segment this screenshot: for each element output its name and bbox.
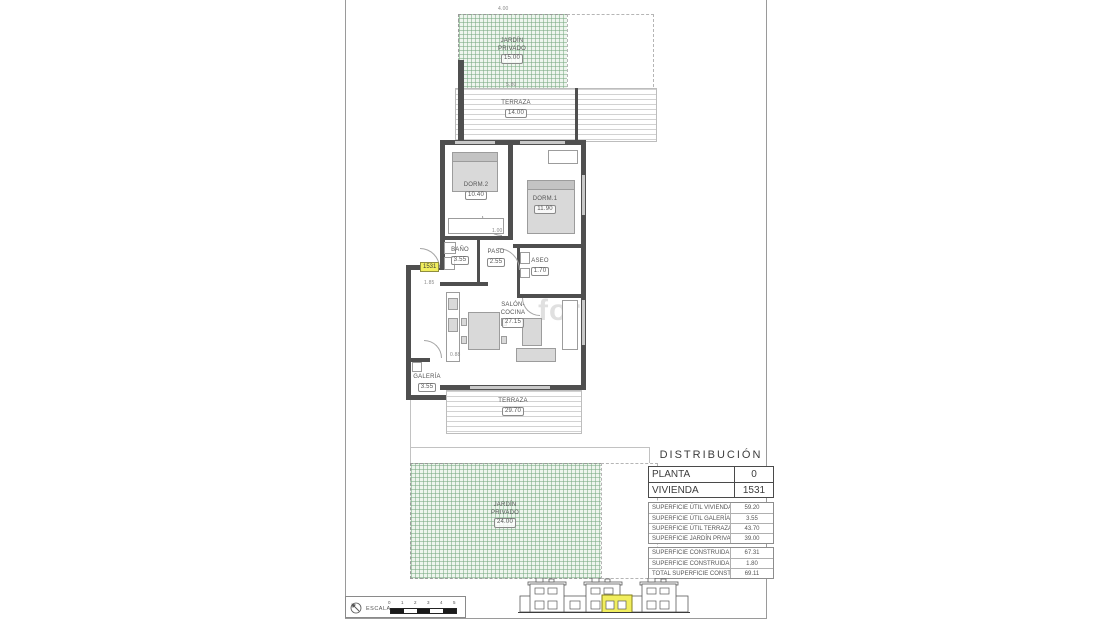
- terrace-bottom-label: TERRAZA 29.70: [446, 398, 580, 416]
- chimney: [536, 578, 543, 582]
- elevation-window: [606, 601, 614, 609]
- salon-line2: COCINA: [501, 310, 526, 316]
- paso-label: PASO 2.55: [479, 249, 513, 267]
- garden-bottom-line1: JARDÍN: [494, 502, 517, 508]
- elevation-window: [535, 601, 544, 609]
- neighbor-garden-top: [567, 14, 654, 92]
- salon-label: SALÓN- COCINA 27.15: [490, 302, 536, 328]
- bano-label: BAÑO 3.55: [442, 247, 478, 265]
- dorm2-label: DORM.2 10.40: [444, 182, 508, 200]
- window-right-dorm1: [582, 175, 585, 215]
- scale-tick: 1: [401, 600, 404, 605]
- area-value: 69.11: [730, 569, 773, 578]
- bed-dorm1-pillows: [527, 180, 575, 190]
- kitchen-cabinets: [562, 300, 578, 350]
- dorm1-label: DORM.1 11.90: [511, 196, 579, 214]
- vivienda-value: 1531: [734, 483, 773, 497]
- galeria-area-value: 3.55: [418, 383, 436, 393]
- elevation-window: [647, 588, 656, 594]
- dorm2-area-value: 10.40: [465, 191, 487, 201]
- chair: [461, 336, 467, 344]
- garden-bottom-line2: PRIVADO: [491, 510, 519, 516]
- wall-dorm2-bottom: [440, 236, 512, 240]
- scale-label: ESCALA: [366, 606, 391, 612]
- sheet-border-left: [345, 0, 346, 619]
- paso-area-value: 2.55: [487, 258, 505, 268]
- dim-entry: 1.85: [424, 280, 435, 286]
- area-value: 43.70: [730, 524, 773, 533]
- scale-segment: [417, 609, 430, 613]
- elevation-window: [570, 601, 580, 609]
- scale-tick: 2: [414, 600, 417, 605]
- panel-title: DISTRIBUCIÓN: [648, 449, 774, 461]
- scale-segment: [391, 609, 404, 613]
- scale-segment: [404, 609, 417, 613]
- garden-top-area-value: 15.00: [501, 54, 523, 64]
- chimney: [661, 579, 666, 582]
- kitchen-sink: [448, 298, 458, 310]
- area-value: 3.55: [730, 514, 773, 523]
- area-label: TOTAL SUPERFICIE CONSTRUIDA: [649, 569, 730, 578]
- plot-line-left: [410, 400, 411, 463]
- chimney: [605, 579, 610, 582]
- terrace-top-name: TERRAZA: [501, 100, 530, 106]
- wall-bano-bottom: [440, 282, 488, 286]
- area-value: 39.00: [730, 534, 773, 543]
- elevation-window: [647, 601, 656, 609]
- elevation-window: [548, 588, 557, 594]
- elevation-window: [548, 601, 557, 609]
- areas-built-table: SUPERFICIE CONSTRUIDA VIVIENDA 67.31 SUP…: [648, 547, 774, 579]
- elevation-window: [660, 601, 669, 609]
- elevation-window: [618, 601, 626, 609]
- elevation-window: [535, 588, 544, 594]
- dim-kitchen: 0.88: [450, 352, 461, 358]
- galeria-name: GALERÍA: [413, 374, 440, 380]
- planta-label: PLANTA: [649, 467, 734, 482]
- garden-top-label: JARDÍN PRIVADO 15.00: [458, 38, 566, 64]
- chimney: [648, 578, 655, 582]
- area-label: SUPERFICIE JARDÍN PRIVADO: [649, 534, 730, 543]
- unit-number-badge: 1531: [420, 262, 439, 272]
- garden-edge-line: [410, 447, 650, 448]
- kitchen-hob: [448, 318, 458, 332]
- garden-bottom-area-value: 24.00: [494, 518, 516, 528]
- table-row: VIVIENDA 1531: [649, 482, 773, 497]
- chair: [501, 336, 507, 344]
- sheet-border-bottom: [345, 618, 766, 619]
- scale-tick: 3: [427, 600, 430, 605]
- table-row: PLANTA 0: [649, 467, 773, 482]
- plan-sheet: for JARDÍN PRIVADO 15.00 4.00 TERRAZA 14…: [0, 0, 1110, 626]
- dorm1-area-value: 11.90: [534, 205, 556, 215]
- area-value: 1.80: [730, 559, 773, 568]
- chair: [461, 318, 467, 326]
- table-row: SUPERFICIE ÚTIL VIVIENDA 59.20: [649, 503, 773, 513]
- salon-area-value: 27.15: [502, 318, 524, 328]
- area-label: SUPERFICIE CONSTRUIDA EL. COMUNES: [649, 559, 730, 568]
- table-row: SUPERFICIE ÚTIL GALERÍA 3.55: [649, 513, 773, 523]
- table-row: SUPERFICIE ÚTIL TERRAZA 43.70: [649, 523, 773, 533]
- chimney: [592, 578, 599, 582]
- area-label: SUPERFICIE ÚTIL VIVIENDA: [649, 503, 730, 513]
- terrace-bottom-name: TERRAZA: [498, 398, 527, 404]
- bed-dorm2-pillows: [452, 152, 498, 162]
- table-row: TOTAL SUPERFICIE CONSTRUIDA 69.11: [649, 568, 773, 578]
- chimney: [549, 579, 554, 582]
- area-label: SUPERFICIE CONSTRUIDA VIVIENDA: [649, 548, 730, 558]
- window-right-salon: [582, 300, 585, 345]
- terrace-bottom-area-value: 29.70: [502, 407, 524, 417]
- door-arc-galeria: [424, 340, 442, 358]
- garden-bottom-label: JARDÍN PRIVADO 24.00: [410, 502, 600, 528]
- areas-util-table: SUPERFICIE ÚTIL VIVIENDA 59.20 SUPERFICI…: [648, 502, 774, 544]
- aseo-label: ASEO 1.70: [522, 258, 558, 276]
- north-arrow-icon: [350, 602, 362, 614]
- elevation-window: [660, 588, 669, 594]
- dorm2-name: DORM.2: [464, 182, 489, 188]
- vivienda-label: VIVIENDA: [649, 483, 734, 497]
- unit-table: PLANTA 0 VIVIENDA 1531: [648, 466, 774, 498]
- building-elevation: [518, 578, 690, 618]
- elevation-window: [591, 588, 600, 594]
- table-row: SUPERFICIE CONSTRUIDA EL. COMUNES 1.80: [649, 558, 773, 568]
- dim-hall: 1.00: [492, 228, 503, 234]
- scale-segment: [430, 609, 443, 613]
- dorm1-name: DORM.1: [533, 196, 558, 202]
- sofa: [516, 348, 556, 362]
- bano-area-value: 3.55: [451, 256, 469, 266]
- terrace-top-label: TERRAZA 14.00: [455, 100, 577, 118]
- scale-tick: 4: [440, 600, 443, 605]
- washer: [412, 362, 422, 372]
- table-row: SUPERFICIE CONSTRUIDA VIVIENDA 67.31: [649, 548, 773, 558]
- garden-top-line1: JARDÍN: [501, 38, 524, 44]
- sliding-door-terrace: [470, 386, 550, 389]
- salon-line1: SALÓN-: [501, 302, 525, 308]
- window-dorm1: [520, 141, 565, 144]
- planta-value: 0: [734, 467, 773, 482]
- garden-top-line2: PRIVADO: [498, 46, 526, 52]
- area-value: 67.31: [730, 548, 773, 558]
- dim-top-garden: 4.00: [498, 6, 509, 12]
- galeria-label: GALERÍA 3.55: [408, 374, 446, 392]
- scale-box: ESCALA 0 1 2 3 4 5: [345, 596, 466, 618]
- scale-tick: 0: [388, 600, 391, 605]
- table-row: SUPERFICIE JARDÍN PRIVADO 39.00: [649, 533, 773, 543]
- wall-galeria-bottom: [406, 395, 448, 400]
- paso-name: PASO: [487, 249, 504, 255]
- wardrobe-dorm1: [548, 150, 578, 164]
- terrace-top-area-value: 14.00: [505, 109, 527, 119]
- scale-tick: 5: [453, 600, 456, 605]
- window-dorm2: [455, 141, 495, 144]
- aseo-area-value: 1.70: [531, 267, 549, 277]
- aseo-name: ASEO: [531, 258, 548, 264]
- wall-dorm-partition: [508, 145, 513, 240]
- elevation-window: [604, 588, 613, 594]
- elevation-window: [591, 601, 600, 609]
- area-label: SUPERFICIE ÚTIL TERRAZA: [649, 524, 730, 533]
- scale-bar: [390, 608, 457, 614]
- wall-dorm1-bottom: [513, 244, 586, 248]
- dim-terrace-top: 5.80: [506, 82, 517, 88]
- area-label: SUPERFICIE ÚTIL GALERÍA: [649, 514, 730, 523]
- bano-name: BAÑO: [451, 247, 469, 253]
- scale-segment: [443, 609, 456, 613]
- area-value: 59.20: [730, 503, 773, 513]
